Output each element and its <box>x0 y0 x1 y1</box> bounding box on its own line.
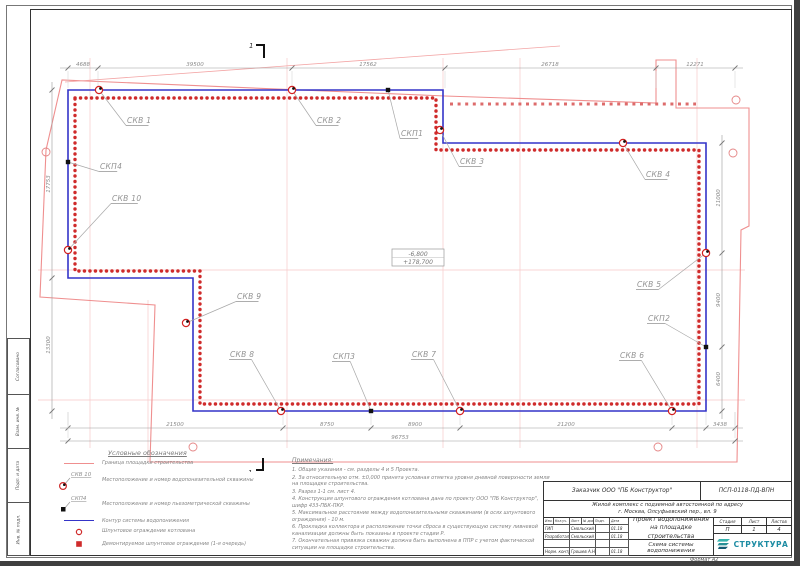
legend-item-text: Местоположение и номер пьезометрической … <box>102 501 250 507</box>
svg-text:СКВ 10: СКВ 10 <box>112 194 141 203</box>
note-item: 2. За относительную отм. ±0,000 принята … <box>292 475 550 488</box>
legend-item: Демонтируемое шпунтовое ограждение (1-я … <box>56 539 288 549</box>
axis-bubble <box>729 149 737 157</box>
notes-list: 1. Общие указания - см. разделы 4 и 5 Пр… <box>292 467 550 551</box>
sig-cell <box>570 540 596 547</box>
svg-text:-6,800: -6,800 <box>408 251 428 258</box>
svg-text:СКП3: СКП3 <box>333 352 355 361</box>
note-item: 7. Окончательная привязка скважин должна… <box>292 538 550 551</box>
svg-text:21500: 21500 <box>166 422 184 428</box>
logo-text: СТРУКТУРА <box>734 540 789 549</box>
sig-cell: Смольский А.Л. <box>570 525 596 532</box>
svg-text:96753: 96753 <box>391 435 409 441</box>
legend-item-text: Местоположение и номер водопонизительной… <box>102 477 254 483</box>
axis-bubble <box>654 443 662 451</box>
note-item: 5. Максимальное расстояние между водопон… <box>292 510 550 523</box>
titleblock-doc-code: ПСП-0118-ПД-ВПН <box>701 482 792 501</box>
note-item: 6. Прокладка коллектора и расположение т… <box>292 524 550 537</box>
well-СКВ 9: СКВ 9 <box>182 292 261 327</box>
sig-cell: Смольский А.Л. <box>570 533 596 540</box>
signature-grid: Изм.Кол.уч.Лист№ док.Подп.Дата ГИПСмольс… <box>544 518 629 556</box>
logo-cell: СТРУКТУРА <box>714 534 791 555</box>
title-block: Заказчик ООО "ПБ Конструктор" ПСП-0118-П… <box>543 481 792 556</box>
legend-items: Граница площадки строительстваСКВ 10Мест… <box>56 460 288 549</box>
sig-row: ГИПСмольский А.Л.01.18 <box>544 525 629 533</box>
sig-cell <box>596 548 610 555</box>
svg-text:СКВ 4: СКВ 4 <box>646 170 670 179</box>
legend-item-text: Шпунтовое ограждение котлована <box>102 528 195 534</box>
svg-text:11000: 11000 <box>716 189 722 207</box>
format-label: Формат А2 <box>690 557 718 563</box>
sheet-pile-removed-icon <box>56 539 102 549</box>
stage-value: П <box>714 526 742 534</box>
sig-cell: ГИП <box>544 525 570 532</box>
sig-header-cell: Кол.уч. <box>554 518 570 524</box>
svg-text:СКВ 5: СКВ 5 <box>637 280 661 289</box>
dewatering-contour <box>68 90 706 411</box>
svg-text:26718: 26718 <box>541 62 559 68</box>
svg-text:8750: 8750 <box>320 422 334 428</box>
note-item: 4. Конструкция шпунтового ограждения кот… <box>292 496 550 509</box>
object-line2: г. Москва, Олсуфьевский пер., вл. 9 <box>618 509 716 516</box>
svg-text:+178,700: +178,700 <box>403 259 433 266</box>
elevation-box: -6,800+178,700 <box>392 249 444 266</box>
side-stamp: СогласованоВзам. инв. №Подп. и датаИнв. … <box>7 338 30 556</box>
signature-header: Изм.Кол.уч.Лист№ док.Подп.Дата <box>544 518 629 525</box>
sig-cell: Грошев А.Н. <box>570 548 596 555</box>
side-stamp-cell: Взам. инв. № <box>7 394 30 448</box>
svg-text:21200: 21200 <box>557 422 575 428</box>
sig-cell: Норм. контр. <box>544 548 570 555</box>
notes-title: Примечания: <box>292 457 550 464</box>
svg-text:СКП4: СКП4 <box>71 496 87 502</box>
svg-text:17562: 17562 <box>359 62 377 68</box>
svg-text:СКВ 6: СКВ 6 <box>620 351 644 360</box>
piezo-СКП1: СКП1 <box>386 88 423 139</box>
sig-cell: 01.18 <box>610 525 629 532</box>
drawing-sheet: 4688395001756226718122712150087508900212… <box>0 0 794 561</box>
sig-header-cell: № док. <box>582 518 594 524</box>
svg-text:СКВ 3: СКВ 3 <box>460 157 484 166</box>
logo-icon <box>717 538 731 551</box>
sheet-label: Лист <box>742 518 767 526</box>
svg-text:СКВ 10: СКВ 10 <box>71 472 92 478</box>
legend-item: Шпунтовое ограждение котлована <box>56 527 288 537</box>
sig-row: Норм. контр.Грошев А.Н.01.18 <box>544 548 629 556</box>
note-item: 1. Общие указания - см. разделы 4 и 5 Пр… <box>292 467 550 474</box>
side-stamp-cell: Подп. и дата <box>7 448 30 502</box>
notes: Примечания: 1. Общие указания - см. разд… <box>292 457 550 552</box>
svg-text:СКП2: СКП2 <box>648 314 670 323</box>
sig-cell: 01.18 <box>610 548 629 555</box>
water-well-icon: СКВ 10 <box>56 469 102 491</box>
axis-bubble <box>732 96 740 104</box>
svg-text:8900: 8900 <box>408 422 422 428</box>
sig-row: РазработалСмольский А.Л.01.18 <box>544 533 629 541</box>
well-СКВ 2: СКВ 2 <box>288 86 341 125</box>
svg-text:СКВ 2: СКВ 2 <box>317 116 341 125</box>
sheet-value: 1 <box>742 526 767 534</box>
object-line1: Жилой комплекс с подземной автостоянкой … <box>592 502 743 509</box>
piezo-well-icon: СКП4 <box>56 493 102 515</box>
sig-cell: Разработал <box>544 533 570 540</box>
svg-text:СКВ 7: СКВ 7 <box>412 350 436 359</box>
well-СКВ 1: СКВ 1 <box>95 86 151 125</box>
legend: Условные обозначения Граница площадки ст… <box>56 449 288 552</box>
sig-cell <box>596 540 610 547</box>
svg-text:12271: 12271 <box>686 62 704 68</box>
sig-header-cell: Дата <box>610 518 629 524</box>
legend-title: Условные обозначения <box>56 449 288 457</box>
titleblock-object: Жилой комплекс с подземной автостоянкой … <box>544 501 791 518</box>
project-line2: на площадке строительства <box>629 524 713 540</box>
sig-cell <box>596 525 610 532</box>
site-plan-drawing: 4688395001756226718122712150087508900212… <box>0 0 800 472</box>
svg-text:СКВ 8: СКВ 8 <box>230 350 254 359</box>
sheets-label: Листов <box>767 518 791 526</box>
svg-text:СКВ 9: СКВ 9 <box>237 292 261 301</box>
legend-item-text: Контур системы водопонижения <box>102 518 189 524</box>
sheets-value: 4 <box>767 526 791 534</box>
contour-line-icon <box>56 520 102 521</box>
sheet-pile-ring <box>75 98 699 404</box>
legend-item: Контур системы водопонижения <box>56 518 288 524</box>
legend-item: СКП4Местоположение и номер пьезометричес… <box>56 493 288 515</box>
svg-text:3438: 3438 <box>713 422 727 428</box>
project-title: Проект водопонижения на площадке строите… <box>629 518 714 540</box>
sheet-pile-icon <box>56 527 102 537</box>
sig-cell <box>610 540 629 547</box>
sig-cell: 01.18 <box>610 533 629 540</box>
boundary-line-icon <box>56 463 102 464</box>
side-stamp-cell: Согласовано <box>7 338 30 394</box>
svg-text:1: 1 <box>249 42 253 50</box>
side-stamp-cell: Инв. № подл. <box>7 502 30 556</box>
svg-text:17753: 17753 <box>46 175 52 193</box>
legend-item-text: Демонтируемое шпунтовое ограждение (1-я … <box>102 541 246 547</box>
sig-header-cell: Лист <box>570 518 582 524</box>
sig-header-cell: Изм. <box>544 518 554 524</box>
sig-cell <box>544 540 570 547</box>
svg-text:6400: 6400 <box>716 372 722 386</box>
sheet-title: Схема системы водопонижения <box>629 540 714 556</box>
svg-text:СКП4: СКП4 <box>100 162 122 171</box>
legend-item: Граница площадки строительства <box>56 460 288 466</box>
note-item: 3. Разрез 1-1 см. лист 4. <box>292 489 550 496</box>
stage-label: Стадия <box>714 518 742 526</box>
legend-item-text: Граница площадки строительства <box>102 460 193 466</box>
svg-text:39500: 39500 <box>186 62 204 68</box>
svg-text:4688: 4688 <box>76 62 90 68</box>
svg-text:13300: 13300 <box>46 336 52 354</box>
legend-item: СКВ 10Местоположение и номер водопонизит… <box>56 469 288 491</box>
sig-cell <box>596 533 610 540</box>
svg-text:СКП1: СКП1 <box>401 129 423 138</box>
svg-text:СКВ 1: СКВ 1 <box>127 116 151 125</box>
sig-header-cell: Подп. <box>594 518 610 524</box>
structura-logo: СТРУКТУРА <box>717 538 789 551</box>
svg-text:9400: 9400 <box>716 293 722 307</box>
well-СКВ 4: СКВ 4 <box>619 139 670 179</box>
sig-row <box>544 540 629 548</box>
titleblock-customer: Заказчик ООО "ПБ Конструктор" <box>544 482 701 501</box>
